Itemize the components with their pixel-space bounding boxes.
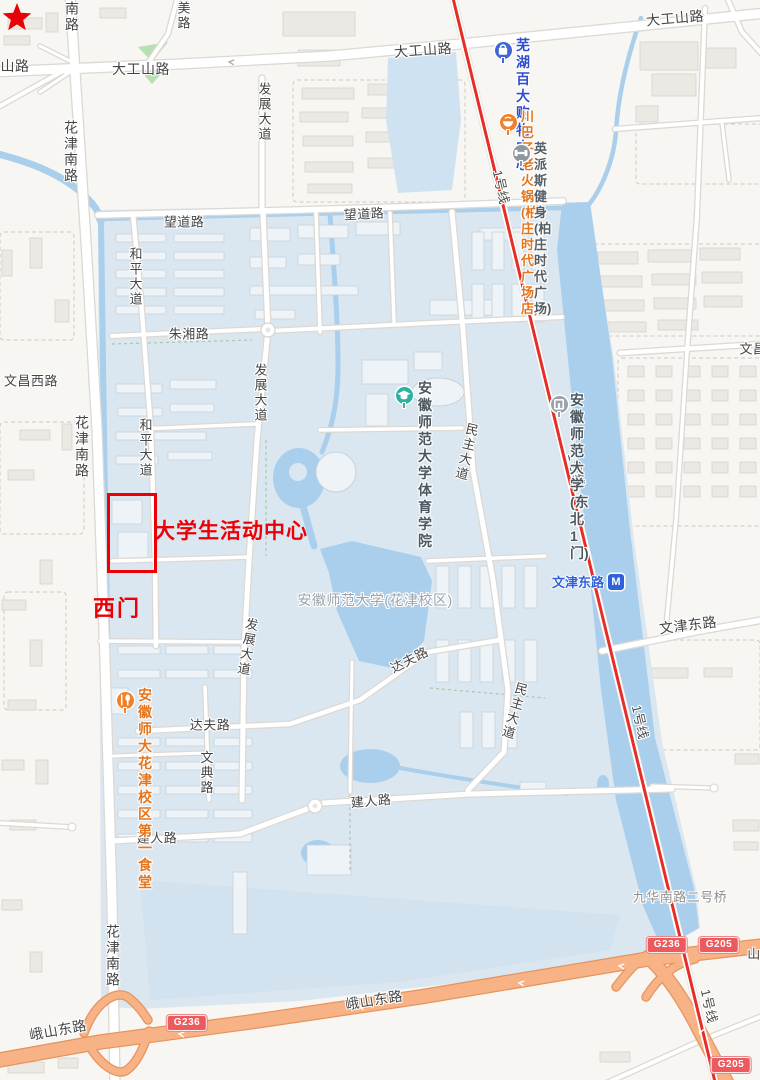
map-viewport[interactable]: 南路美路山路大工山路大工山路大工山路花津南路望道路望道路和平大道朱湘路发展大道发… (0, 0, 760, 1080)
poi-label: 安徽师范大学(东北1门) (570, 392, 589, 562)
pot-icon[interactable] (500, 114, 517, 131)
map-canvas[interactable] (0, 0, 760, 1080)
poi-label: 英派斯健身(柏庄时代广场) (534, 141, 551, 317)
poi-label: 安徽师大花津校区第一食堂 (138, 687, 152, 891)
dumbbell-icon[interactable] (513, 145, 530, 162)
metro-station-name: 文津东路 (552, 572, 604, 591)
cap-icon[interactable] (396, 387, 413, 404)
food-icon[interactable] (117, 692, 134, 709)
poi-label: 安徽师范大学体育学院 (418, 380, 432, 550)
metro-station-wenjindonglu[interactable]: M 文津东路 (552, 572, 624, 591)
bag-icon[interactable] (495, 42, 512, 59)
gate-icon[interactable] (551, 396, 568, 413)
metro-logo-icon[interactable]: M (608, 574, 624, 590)
